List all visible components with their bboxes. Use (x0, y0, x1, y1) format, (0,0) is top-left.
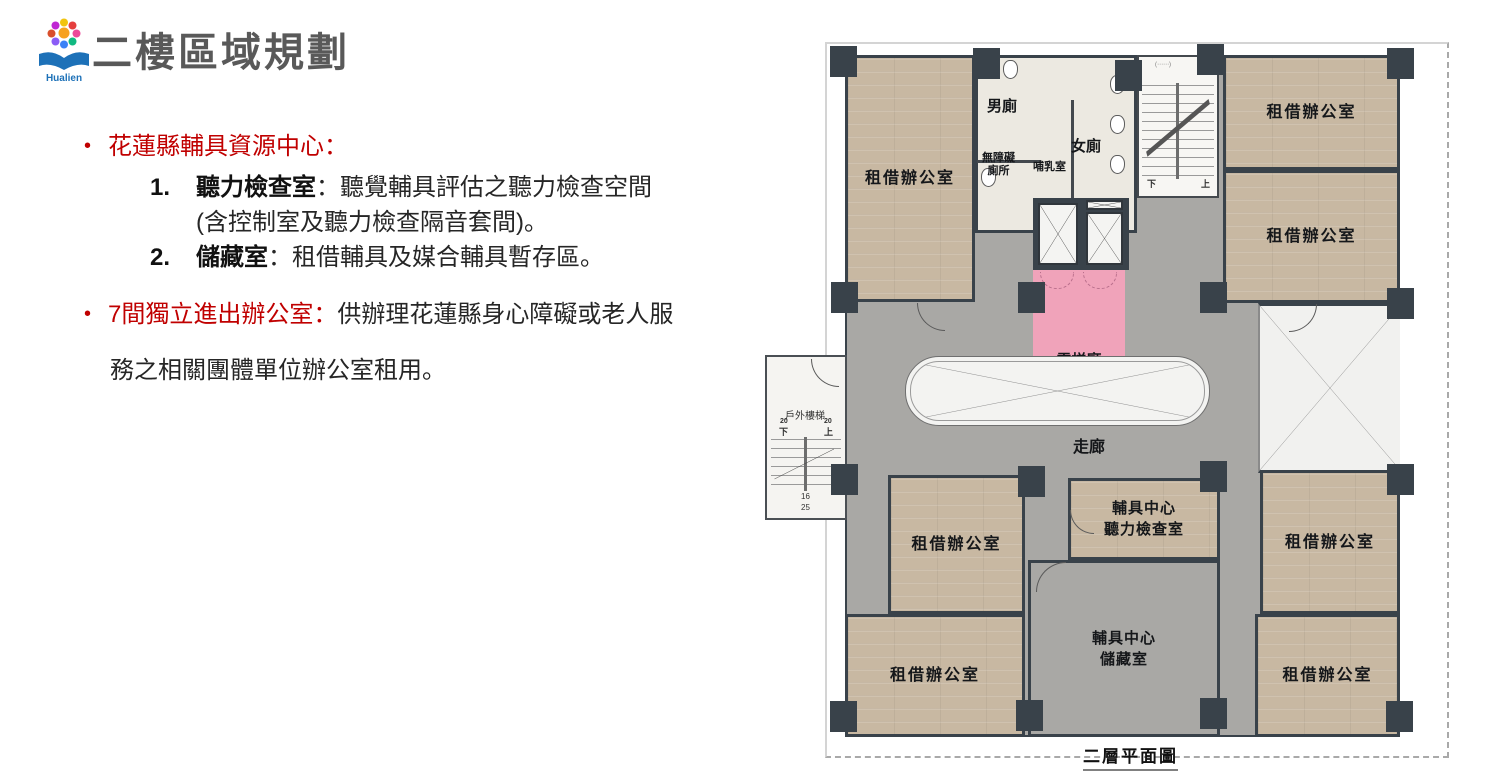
pillar (1387, 288, 1414, 319)
label-nursing-room: 哺乳室 (1033, 158, 1066, 174)
pillar (1115, 60, 1142, 91)
corridor-void (905, 356, 1210, 426)
room-label: 租借辦公室 (1266, 102, 1356, 123)
pillar (1387, 464, 1414, 495)
annex-up-label: 上 (824, 425, 833, 438)
elevator-core (1033, 198, 1129, 270)
pillar (1200, 698, 1227, 729)
slide: { "title": "二樓區域規劃", "logo": { "text": "… (0, 0, 1498, 780)
bullet-assistive-center: •花蓮縣輔具資源中心： (84, 126, 348, 161)
label-accessible-toilet: 無障礙廁所 (982, 152, 1015, 178)
plan-caption: 二層平面圖 (1083, 742, 1178, 771)
accessible-line2: 廁所 (988, 165, 1010, 177)
pillar (973, 48, 1000, 79)
pillar (1018, 282, 1045, 313)
item2-rest: ：租借輔具及媒合輔具暫存區。 (268, 244, 604, 271)
atrium-void (1258, 303, 1400, 473)
room-rental-office-6: 租借辦公室 (1260, 470, 1400, 614)
room-label: 租借辦公室 (890, 665, 980, 686)
door-arc (811, 359, 839, 387)
stair-up-label: 上 (1201, 177, 1210, 190)
interior-stairwell: (⋯⋯) 下 上 (1137, 55, 1219, 198)
elevator-shaft-2 (1086, 212, 1123, 265)
item-number-1: 1. (150, 170, 196, 240)
bullet2-line1: 供辦理花蓮縣身心障礙或老人服 (337, 301, 673, 328)
accessible-line1: 無障礙 (982, 152, 1015, 164)
room-label: 租借辦公室 (1282, 665, 1372, 686)
outdoor-stair-annex: 戶外樓梯 20 20 下 上 16 25 (765, 355, 847, 520)
toilet-fixture-icon (1110, 115, 1125, 134)
pillar (831, 282, 858, 313)
pillar (1018, 466, 1045, 497)
stair-num-20b: 20 (824, 418, 832, 425)
room-label: 租借辦公室 (865, 168, 955, 189)
list-item-hearing-room: 1. 聽力檢查室：聽覺輔具評估之聽力檢查空間(含控制室及聽力檢查隔音套間)。 (150, 170, 726, 240)
hearing-label-line2: 聽力檢查室 (1104, 521, 1184, 538)
item-number-2: 2. (150, 240, 196, 275)
stair-direction-line (1139, 57, 1217, 196)
room-label: 租借辦公室 (911, 534, 1001, 555)
label-outdoor-stairs: 戶外樓梯 (785, 407, 825, 422)
room-rental-office-1: 租借辦公室 (845, 55, 975, 302)
room-rental-office-2: 租借辦公室 (1223, 55, 1400, 170)
label-womens-toilet: 女廁 (1071, 135, 1101, 156)
stair-down-label: 下 (1147, 177, 1156, 190)
stair-num-20a: 20 (780, 418, 788, 425)
hualien-logo-icon: Hualien (34, 16, 94, 84)
floor-plan: 租借辦公室 租借辦公室 租借辦公室 租借辦公室 租借辦公室 租借辦公室 租借辦公… (765, 40, 1498, 780)
list-item-storage-room: 2. 儲藏室：租借輔具及媒合輔具暫存區。 (150, 240, 726, 275)
room-label: 輔具中心儲藏室 (1092, 628, 1156, 670)
item2-bold: 儲藏室 (196, 244, 268, 271)
item-text-2: 儲藏室：租借輔具及媒合輔具暫存區。 (196, 240, 726, 275)
pillar (1200, 461, 1227, 492)
room-rental-office-7: 租借辦公室 (1255, 614, 1400, 737)
hualien-logo-text: Hualien (46, 73, 82, 84)
pillar (830, 46, 857, 77)
stair-note: (⋯⋯) (1155, 61, 1171, 68)
pillar (830, 701, 857, 732)
bullet-heading-2: 7間獨立進出辦公室： (108, 301, 337, 328)
hualien-logo: Hualien (34, 16, 94, 84)
elevator-door-swing (1040, 272, 1074, 289)
toilet-fixture-icon (1110, 155, 1125, 174)
pillar (1016, 700, 1043, 731)
elevator-door-swing (1083, 272, 1117, 289)
pillar (1197, 44, 1224, 75)
corridor-void-inner (910, 361, 1205, 421)
item1-bold: 聽力檢查室 (196, 174, 316, 201)
storage-label-line1: 輔具中心 (1092, 630, 1156, 647)
pillar (1387, 48, 1414, 79)
elevator-shaft-1 (1038, 203, 1078, 265)
bullet-dot: • (84, 135, 108, 158)
page-title: 二樓區域規劃 (92, 20, 350, 78)
item-text-1: 聽力檢查室：聽覺輔具評估之聽力檢查空間(含控制室及聽力檢查隔音套間)。 (196, 170, 726, 240)
bullet-offices: •7間獨立進出辦公室：供辦理花蓮縣身心障礙或老人服務之相關團體單位辦公室租用。 (84, 286, 744, 399)
storage-label-line2: 儲藏室 (1100, 651, 1148, 668)
item1-rest: ：聽覺輔具評估之聽力檢查空間 (316, 174, 652, 201)
label-corridor: 走廊 (1073, 433, 1105, 457)
toilet-fixture-icon (1003, 60, 1018, 79)
bullet2-line2: 務之相關團體單位辦公室租用。 (110, 357, 446, 384)
bullet-dot-2: • (84, 286, 108, 342)
room-rental-office-5: 租借辦公室 (845, 614, 1025, 737)
pillar (1200, 282, 1227, 313)
room-rental-office-3: 租借辦公室 (1223, 170, 1400, 303)
room-rental-office-4: 租借辦公室 (888, 475, 1025, 614)
hearing-label-line1: 輔具中心 (1112, 500, 1176, 517)
stair-num-16: 16 (801, 492, 810, 501)
room-label: 輔具中心聽力檢查室 (1104, 498, 1184, 540)
pillar (831, 464, 858, 495)
bullet-heading-1: 花蓮縣輔具資源中心： (108, 133, 348, 160)
item1-line2: (含控制室及聽力檢查隔音套間)。 (196, 209, 548, 236)
pillar (1386, 701, 1413, 732)
room-label: 租借辦公室 (1285, 532, 1375, 553)
annex-down-label: 下 (779, 425, 788, 438)
room-label: 租借辦公室 (1266, 226, 1356, 247)
stair-num-25: 25 (801, 503, 810, 512)
label-mens-toilet: 男廁 (987, 95, 1017, 116)
elevator-vent (1086, 200, 1123, 210)
